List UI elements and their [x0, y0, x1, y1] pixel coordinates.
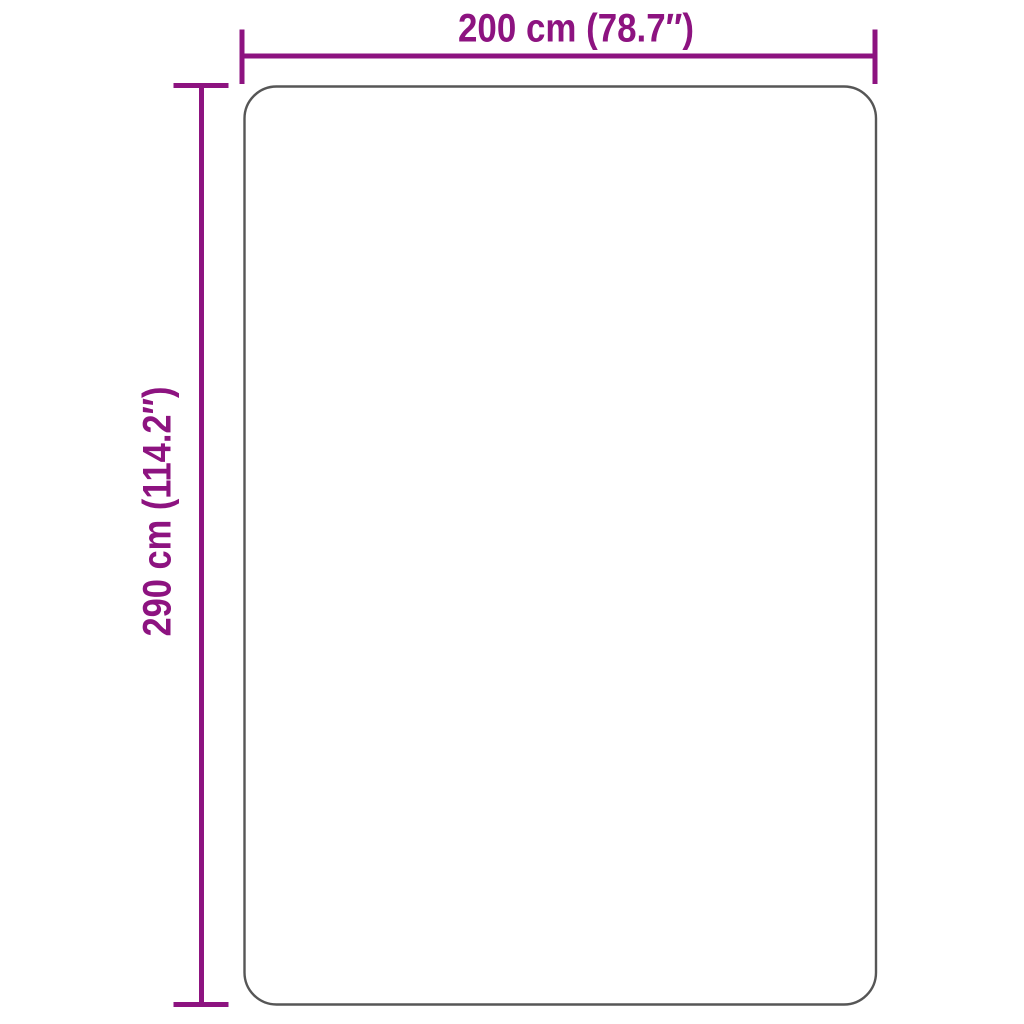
svg-text:290 cm (114.2″): 290 cm (114.2″)	[136, 387, 180, 637]
svg-text:200 cm (78.7″): 200 cm (78.7″)	[458, 7, 694, 51]
